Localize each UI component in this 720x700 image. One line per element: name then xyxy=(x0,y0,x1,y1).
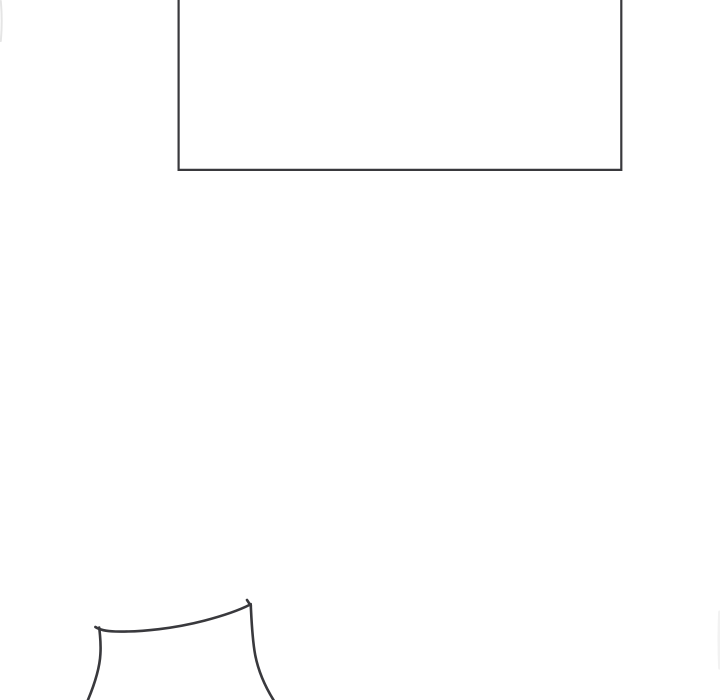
garment-right-side xyxy=(251,604,274,700)
garment-figure-fragment xyxy=(88,600,274,700)
empty-panel-border xyxy=(179,0,622,170)
garment-left-side xyxy=(88,628,101,700)
comic-artwork xyxy=(0,0,720,700)
garment-top-edge xyxy=(95,605,250,632)
left-edge-stroke-fragment xyxy=(1,1,2,41)
webtoon-page-fragment xyxy=(0,0,720,700)
